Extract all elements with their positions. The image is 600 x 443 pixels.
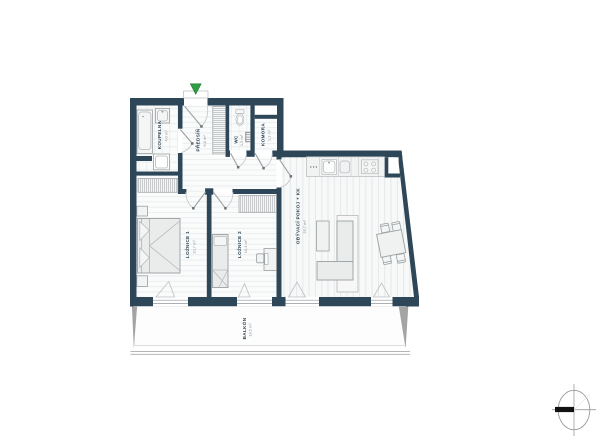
- svg-text:18,5 m²: 18,5 m²: [248, 323, 253, 337]
- svg-text:LOŽNICE 2: LOŽNICE 2: [235, 231, 242, 258]
- svg-text:WC: WC: [233, 135, 238, 144]
- svg-text:OBÝVACÍ POKOJ + KK: OBÝVACÍ POKOJ + KK: [294, 188, 301, 244]
- svg-text:6,8 m²: 6,8 m²: [202, 135, 207, 147]
- svg-text:LOŽNICE 1: LOŽNICE 1: [183, 231, 190, 258]
- svg-text:4,0 m²: 4,0 m²: [164, 130, 169, 142]
- svg-text:25,7 m²: 25,7 m²: [302, 220, 307, 234]
- svg-text:KOUPELNA: KOUPELNA: [157, 120, 162, 149]
- svg-text:KOMORA: KOMORA: [260, 123, 265, 146]
- svg-text:10,4 m²: 10,4 m²: [243, 239, 248, 253]
- svg-text:BALKÓN: BALKÓN: [240, 317, 247, 339]
- svg-text:1,1 m²: 1,1 m²: [266, 129, 271, 141]
- svg-text:10,7 m²: 10,7 m²: [191, 240, 196, 254]
- svg-text:1,5 m²: 1,5 m²: [239, 134, 244, 146]
- svg-text:PŘEDSÍŇ: PŘEDSÍŇ: [193, 128, 200, 151]
